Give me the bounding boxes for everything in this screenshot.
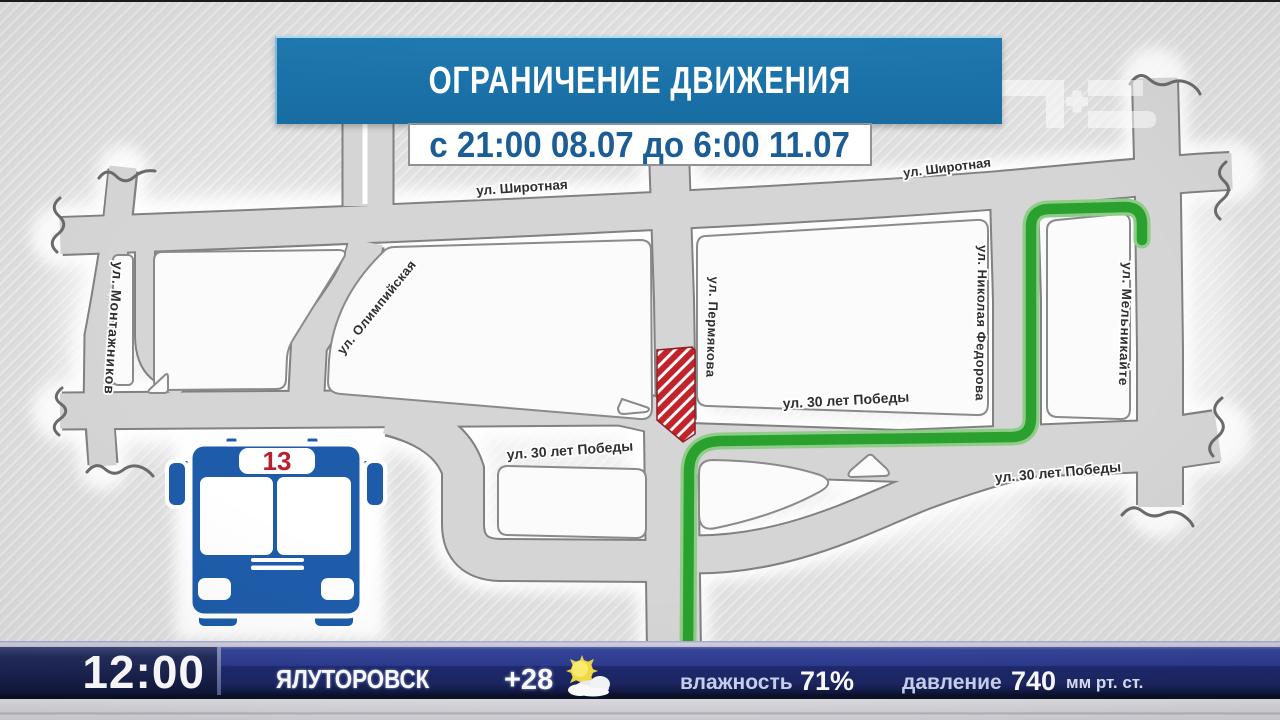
svg-text:13: 13: [263, 446, 292, 476]
svg-text:ул. Николая Федорова: ул. Николая Федорова: [973, 245, 991, 402]
